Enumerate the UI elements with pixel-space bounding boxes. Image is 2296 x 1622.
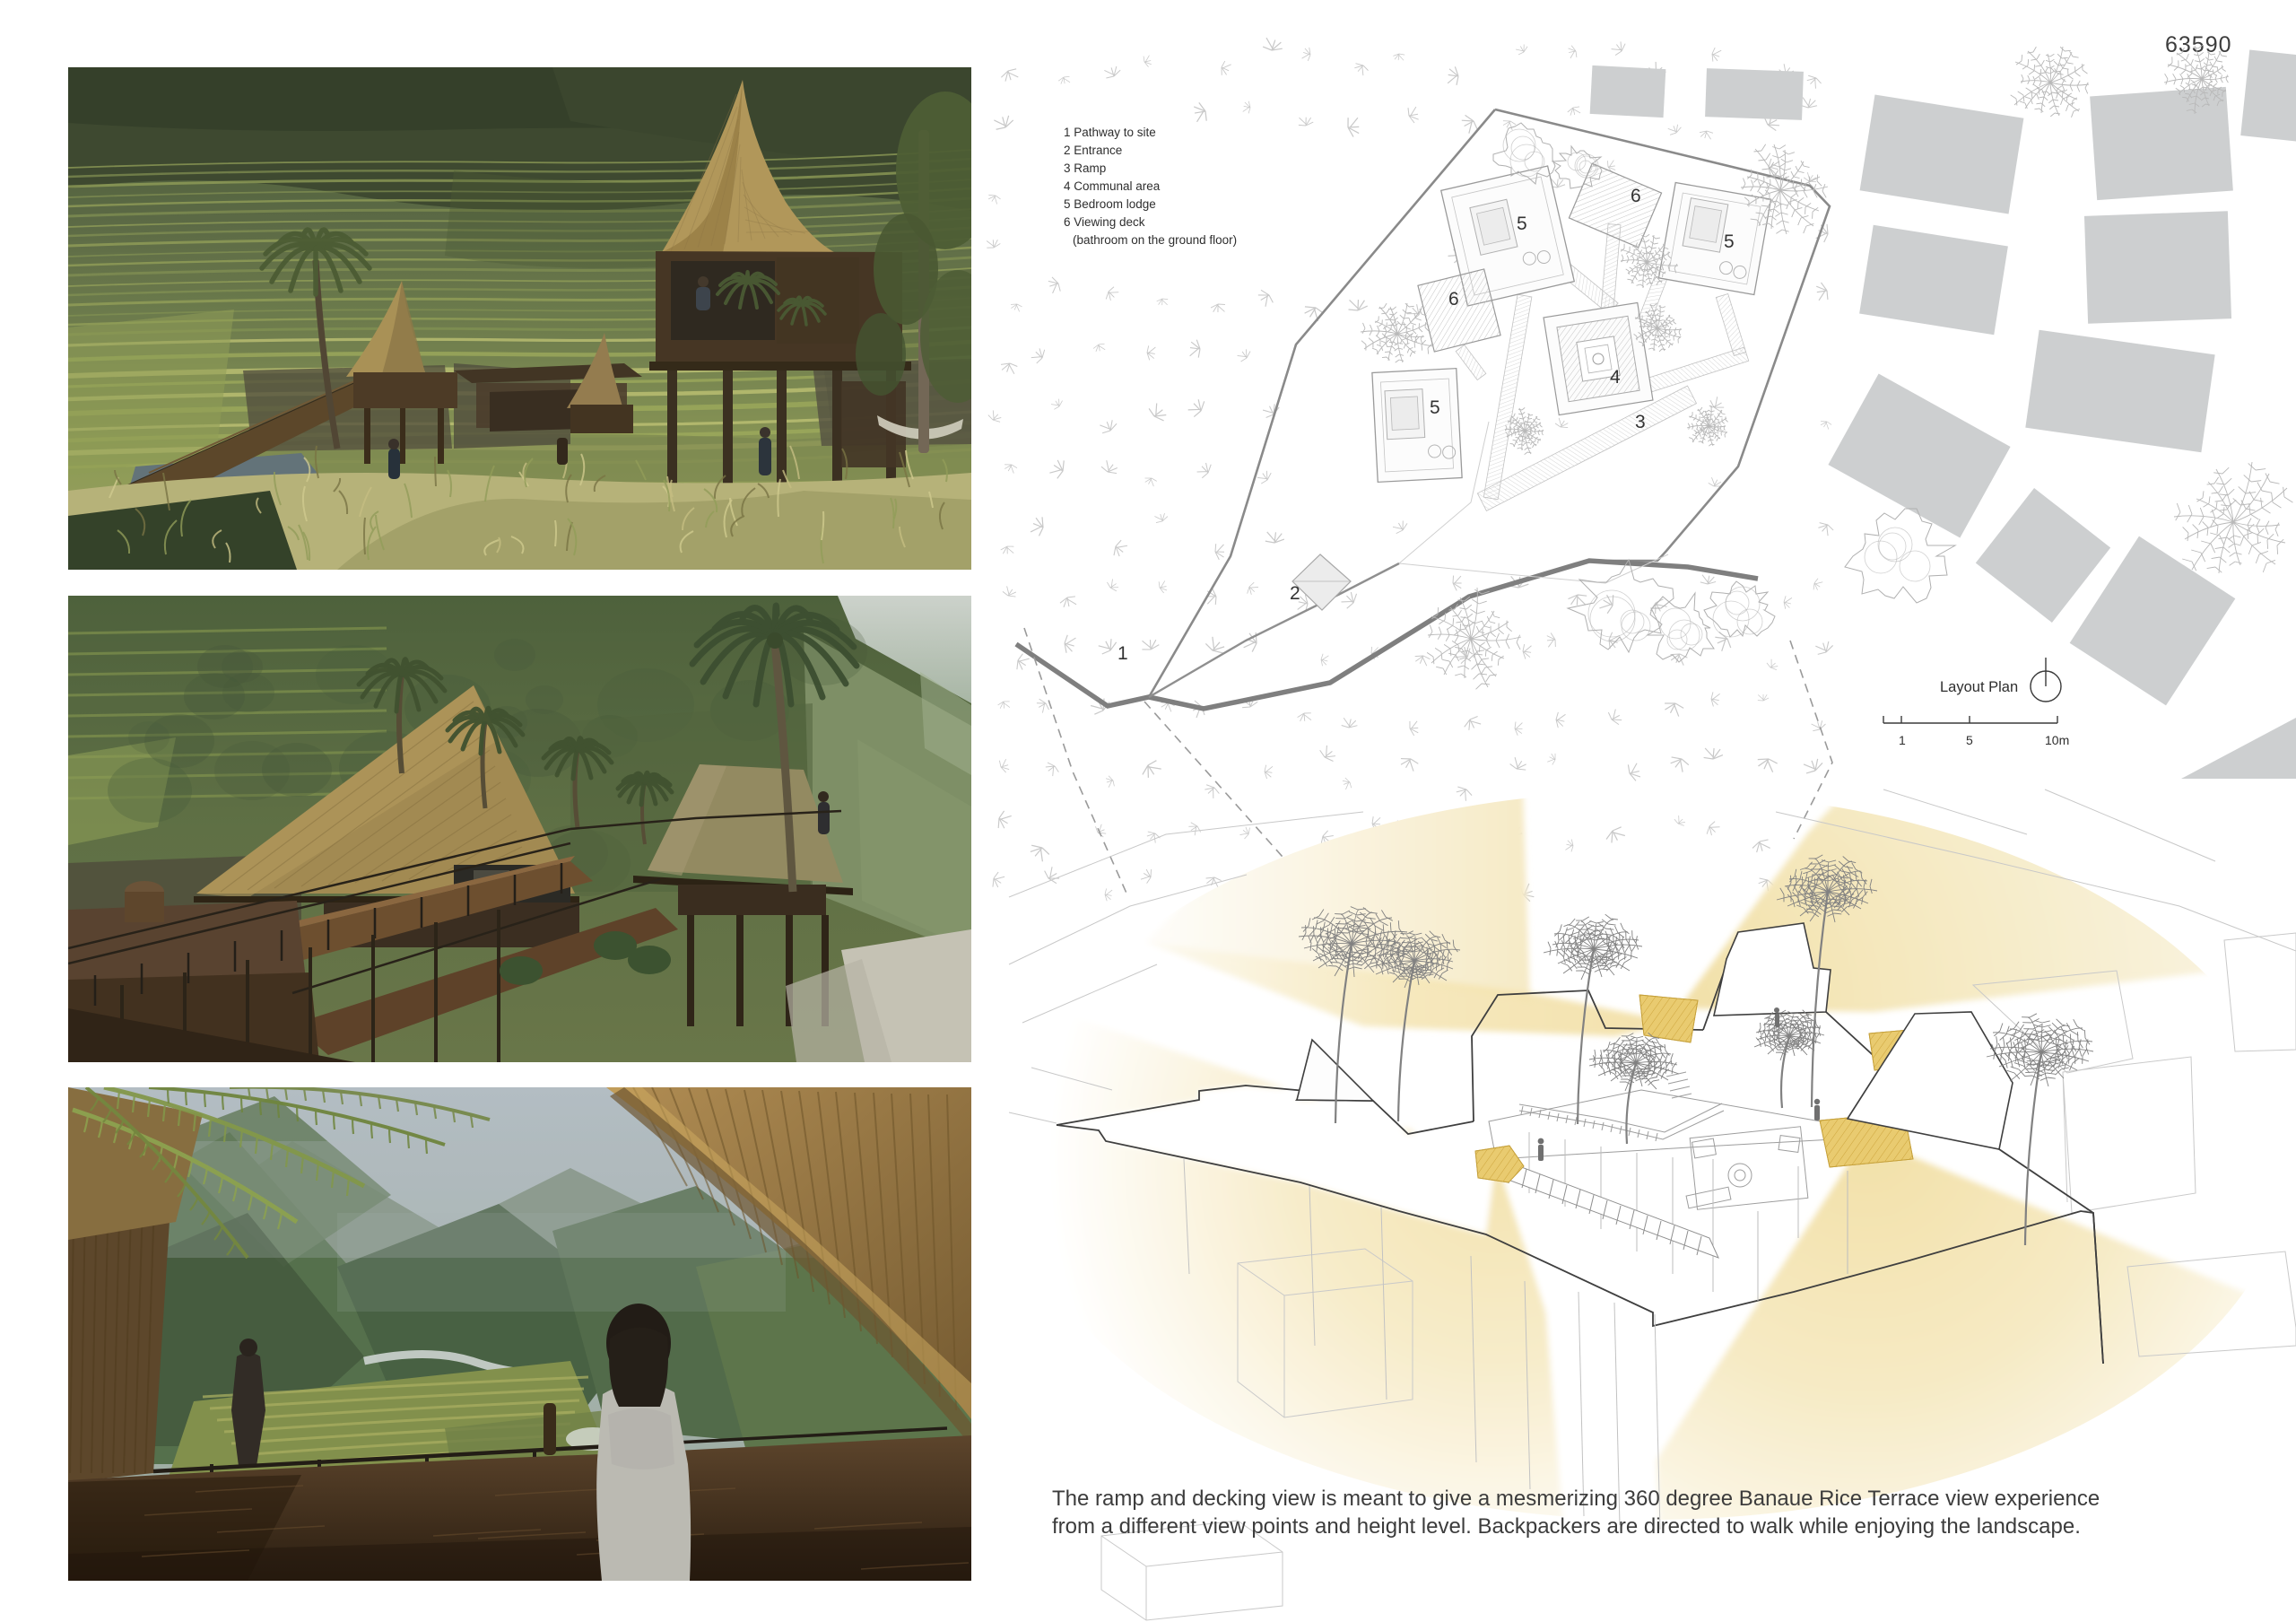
svg-text:5: 5	[1724, 231, 1735, 252]
svg-text:2: 2	[1290, 583, 1300, 604]
svg-text:5: 5	[1517, 214, 1527, 234]
svg-text:6: 6	[1448, 289, 1459, 310]
svg-text:1: 1	[1118, 643, 1128, 664]
svg-text:3: 3	[1635, 412, 1646, 432]
svg-text:5: 5	[1966, 733, 1973, 747]
svg-text:6: 6	[1631, 186, 1641, 206]
svg-text:4: 4	[1610, 367, 1621, 388]
svg-text:10m: 10m	[2045, 733, 2069, 747]
svg-text:1: 1	[1899, 733, 1906, 747]
svg-text:5: 5	[1430, 397, 1440, 418]
